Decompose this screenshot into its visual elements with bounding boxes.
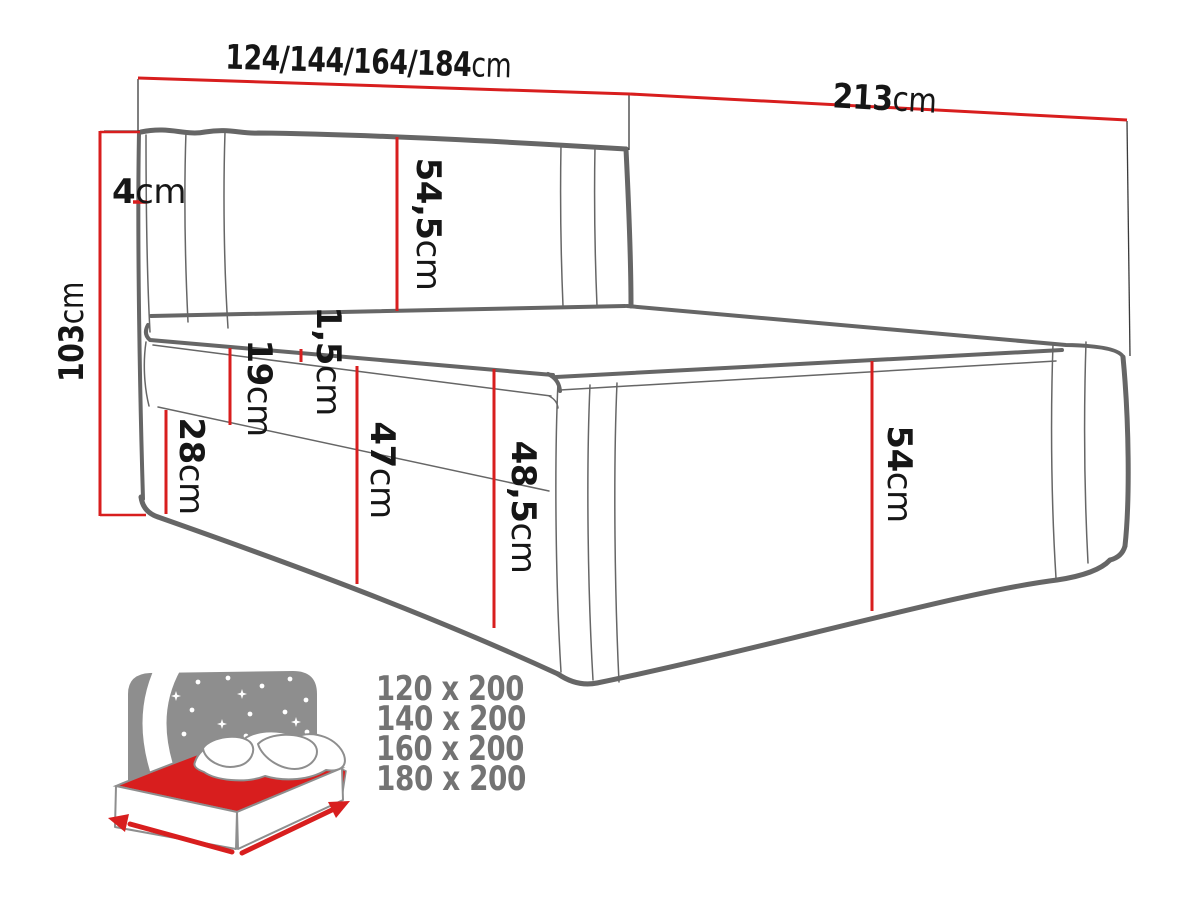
available-sizes-list: 120 x 200 140 x 200 160 x 200 180 x 200 [376,669,526,799]
bed-sizes-icon [108,664,350,853]
star-dot [196,680,201,685]
star-dot [288,677,293,682]
label-width: 124/144/164/184cm [225,38,512,87]
star-dot [304,698,309,703]
label-19: 19cm [239,339,279,436]
label-48-5: 48,5cm [503,441,543,574]
bed-line-drawing [138,130,1128,684]
star-dot [248,712,253,717]
bed-dimensions-diagram-page: 124/144/164/184cm 213cm 103cm 4cm 54,5cm… [0,0,1200,900]
bed-silhouette [138,132,1128,684]
star-dot [260,684,265,689]
star-dot [182,732,187,737]
star-dot [226,676,231,681]
bed-dimensions-diagram: 124/144/164/184cm 213cm 103cm 4cm 54,5cm… [0,0,1200,900]
label-height-103: 103cm [52,282,92,382]
label-54: 54cm [879,425,919,522]
extension-line-right [1127,121,1130,356]
star-dot [283,710,288,715]
star-dot [190,708,195,713]
label-4cm: 4cm [112,172,186,212]
label-1-5: 1,5cm [308,306,348,416]
label-length: 213cm [832,76,938,121]
label-28: 28cm [171,417,211,514]
label-47: 47cm [362,421,402,518]
size-item-180x200: 180 x 200 [376,759,526,799]
label-54-5: 54,5cm [408,158,448,291]
